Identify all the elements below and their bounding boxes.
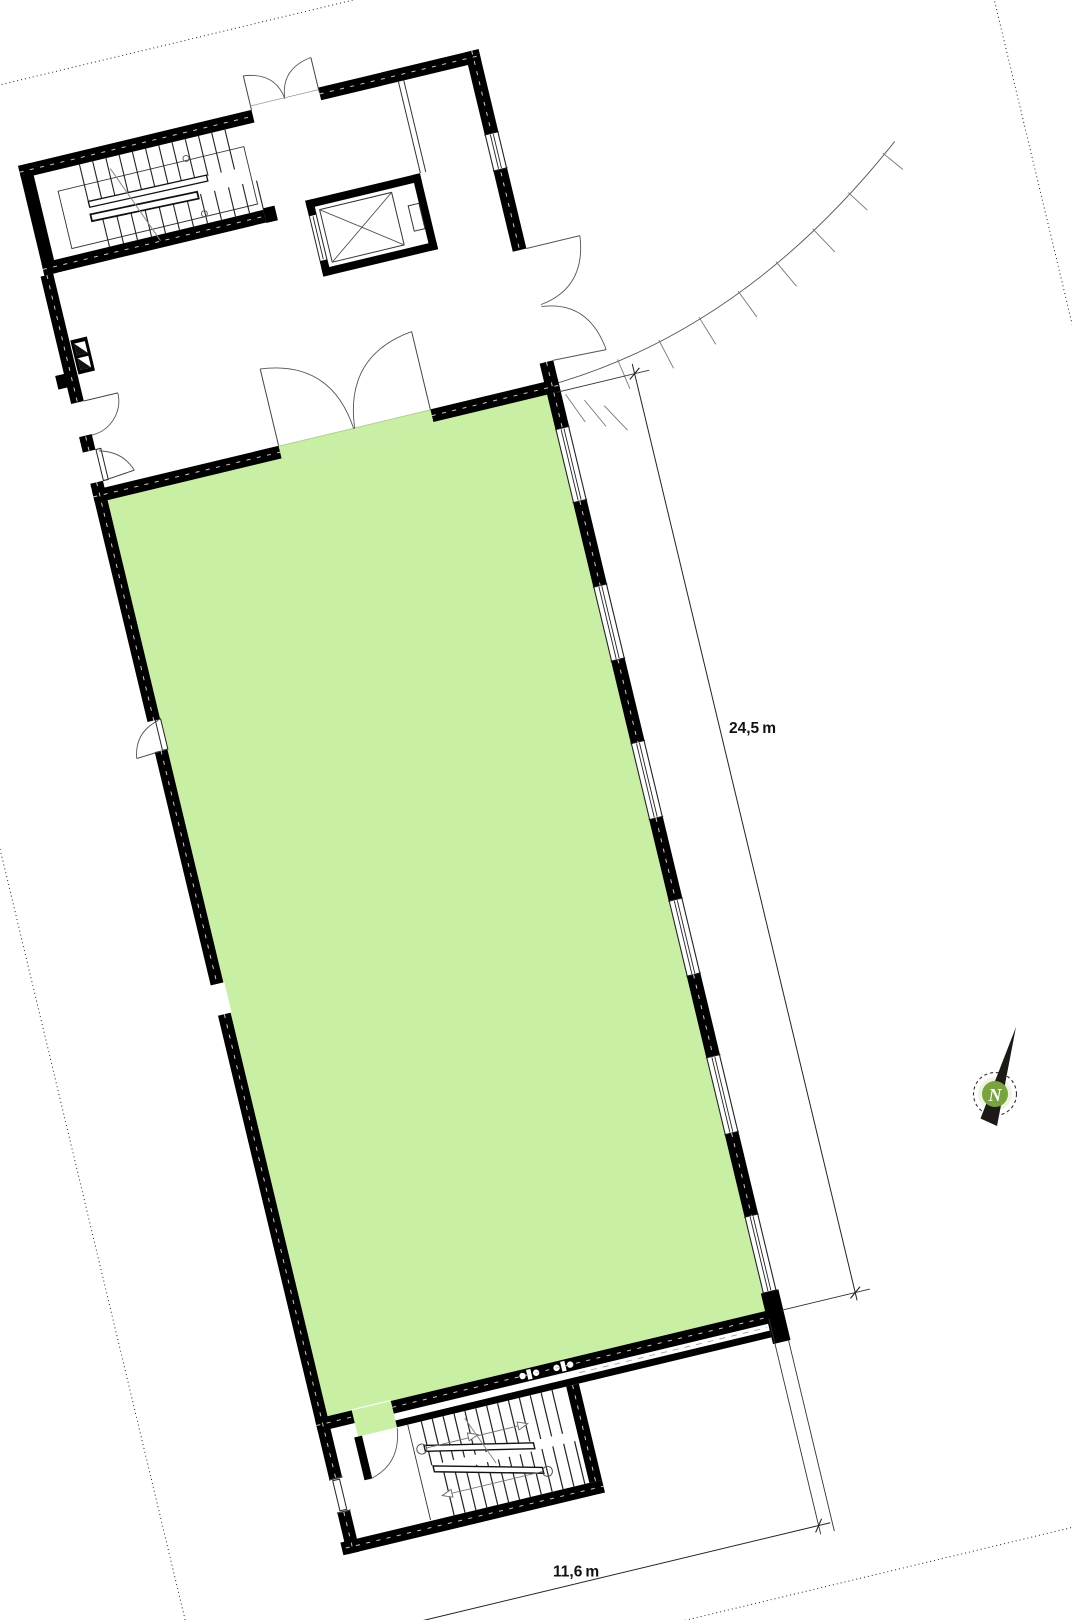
svg-text:11,6 m: 11,6 m: [553, 1564, 599, 1581]
svg-text:N: N: [988, 1085, 1003, 1105]
svg-text:24,5 m: 24,5 m: [729, 720, 776, 737]
